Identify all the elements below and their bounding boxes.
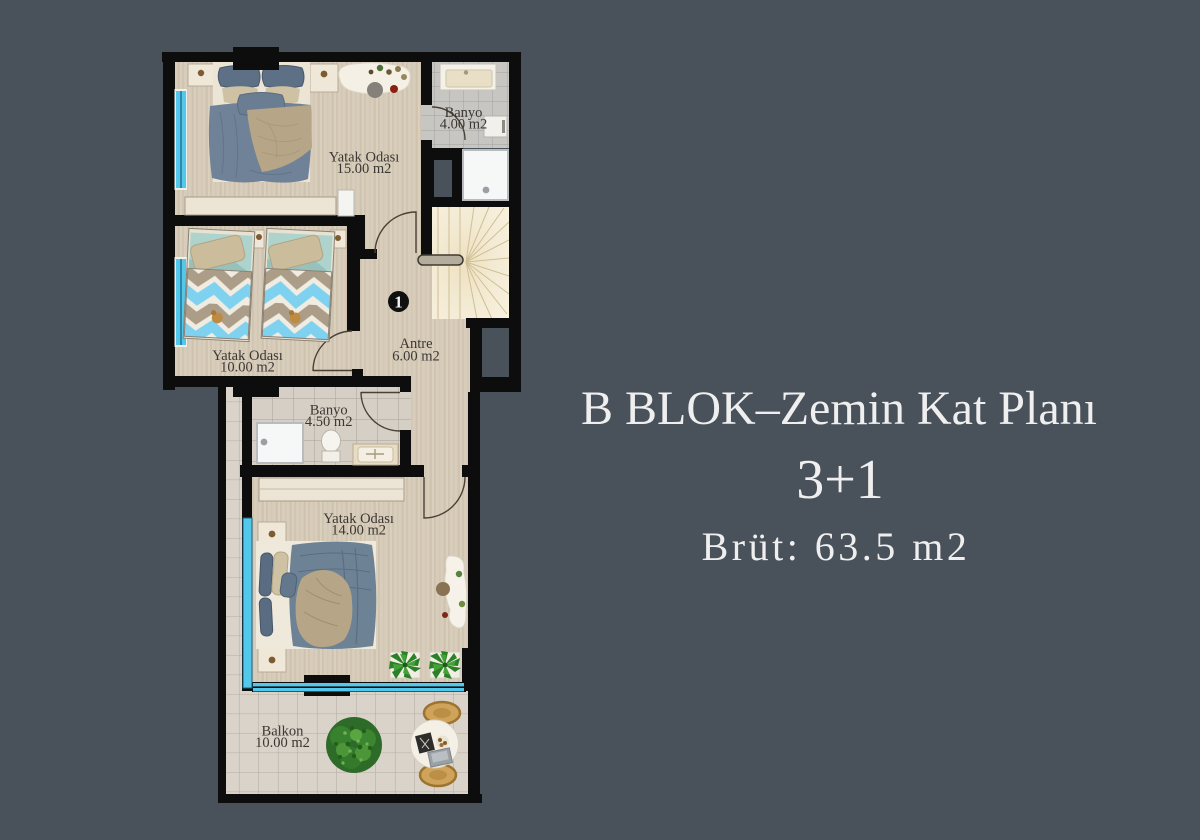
svg-text:4.50 m2: 4.50 m2 (305, 414, 353, 430)
svg-text:15.00 m2: 15.00 m2 (337, 161, 392, 177)
svg-text:Brüt: 63.5 m2: Brüt: 63.5 m2 (702, 524, 971, 569)
svg-text:3+1: 3+1 (796, 449, 884, 511)
svg-text:1: 1 (394, 293, 403, 312)
svg-text:4.00 m2: 4.00 m2 (440, 117, 488, 133)
svg-text:B BLOK–Zemin Kat Planı: B BLOK–Zemin Kat Planı (581, 382, 1097, 435)
svg-text:10.00 m2: 10.00 m2 (220, 360, 275, 376)
svg-text:6.00 m2: 6.00 m2 (392, 349, 440, 365)
svg-text:10.00 m2: 10.00 m2 (255, 735, 310, 751)
svg-text:14.00 m2: 14.00 m2 (331, 523, 386, 539)
